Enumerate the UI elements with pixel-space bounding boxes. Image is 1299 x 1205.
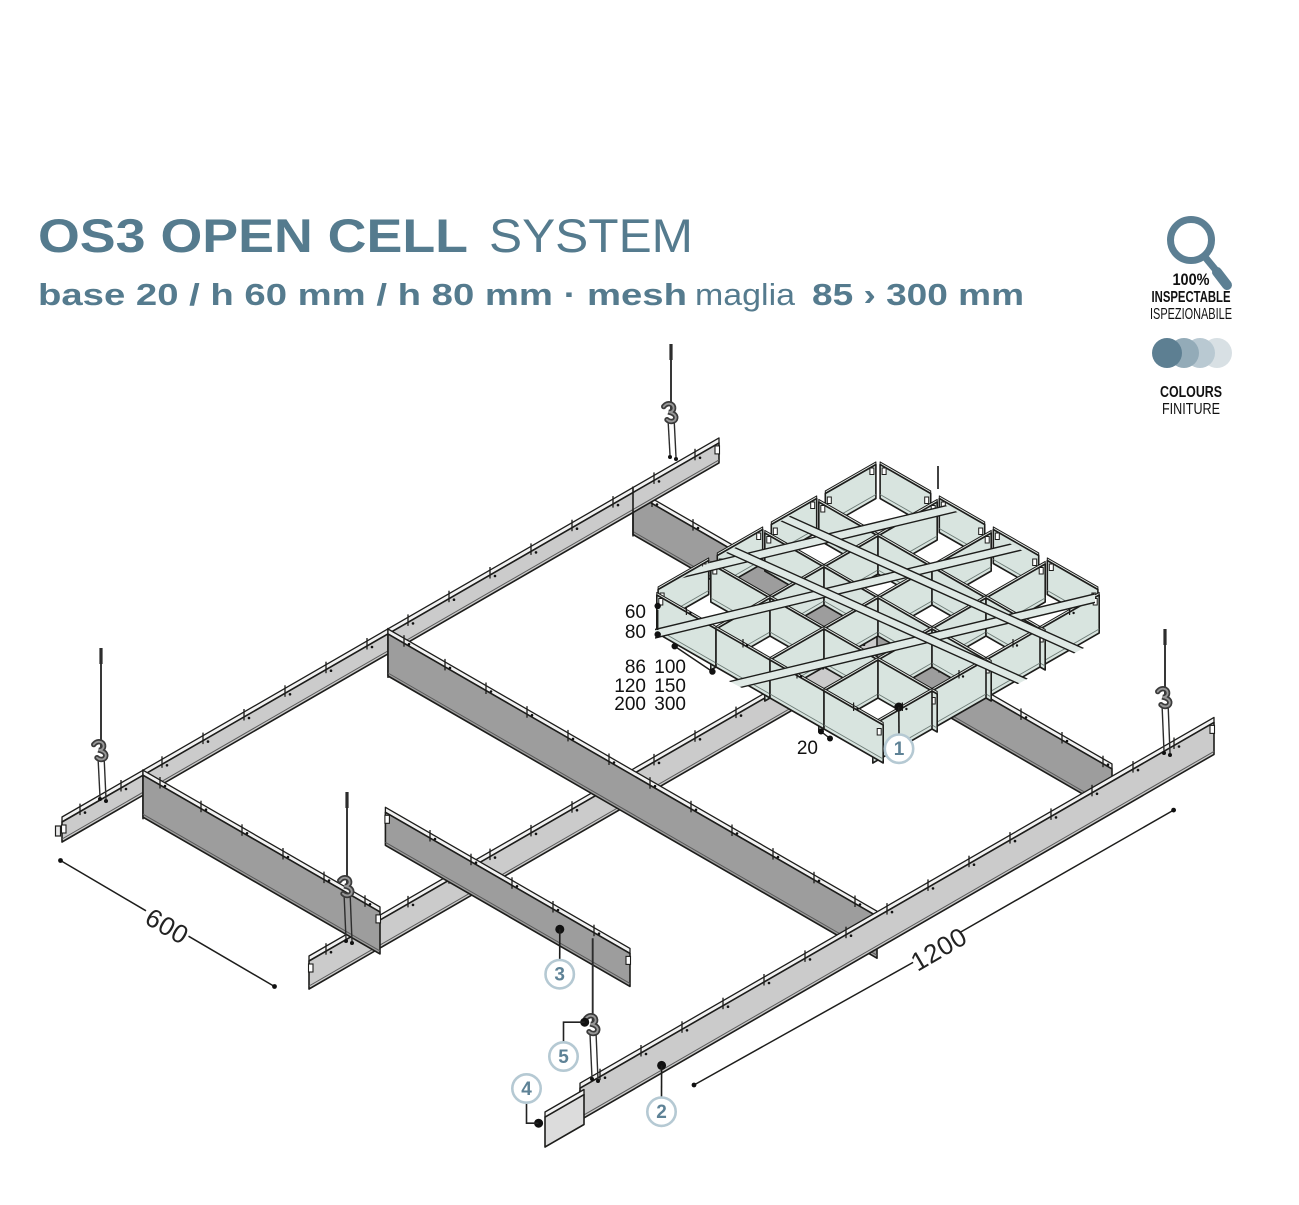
svg-text:3: 3: [554, 965, 565, 986]
svg-text:300: 300: [654, 694, 686, 715]
svg-text:85 › 300 mm: 85 › 300 mm: [812, 277, 1024, 312]
svg-text:5: 5: [558, 1047, 569, 1068]
svg-text:100: 100: [654, 657, 686, 678]
svg-text:maglia: maglia: [695, 277, 796, 312]
svg-text:base 20 / h 60 mm / h 80 mm ·: base 20 / h 60 mm / h 80 mm · mesh: [38, 277, 687, 312]
svg-text:100%: 100%: [1173, 270, 1210, 289]
svg-text:4: 4: [521, 1079, 532, 1100]
svg-text:FINITURE: FINITURE: [1162, 401, 1220, 418]
svg-text:1: 1: [894, 739, 905, 760]
svg-text:INSPECTABLE: INSPECTABLE: [1152, 289, 1231, 306]
svg-text:SYSTEM: SYSTEM: [489, 209, 693, 262]
svg-text:COLOURS: COLOURS: [1160, 384, 1222, 401]
svg-text:20: 20: [797, 738, 818, 759]
svg-text:200: 200: [614, 694, 646, 715]
svg-text:80: 80: [625, 622, 646, 643]
svg-text:86: 86: [625, 657, 646, 678]
svg-text:OS3 OPEN CELL: OS3 OPEN CELL: [38, 209, 468, 262]
svg-text:2: 2: [656, 1102, 667, 1123]
svg-text:60: 60: [625, 602, 646, 623]
svg-text:ISPEZIONABILE: ISPEZIONABILE: [1150, 306, 1232, 323]
